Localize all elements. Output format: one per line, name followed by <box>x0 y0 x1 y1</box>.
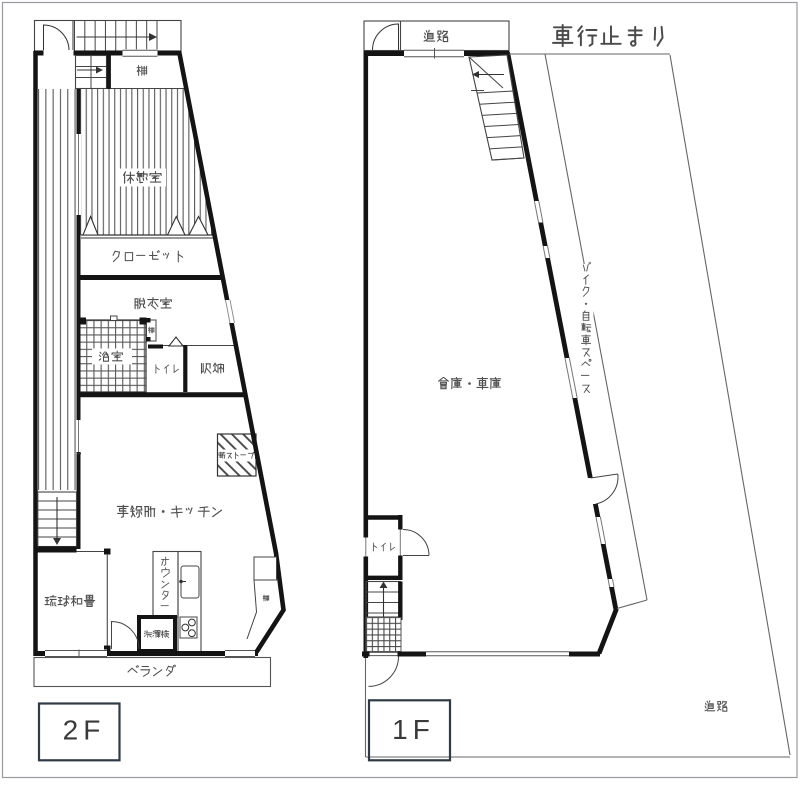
svg-text:1F: 1F <box>392 714 435 745</box>
svg-text:2F: 2F <box>63 715 106 746</box>
